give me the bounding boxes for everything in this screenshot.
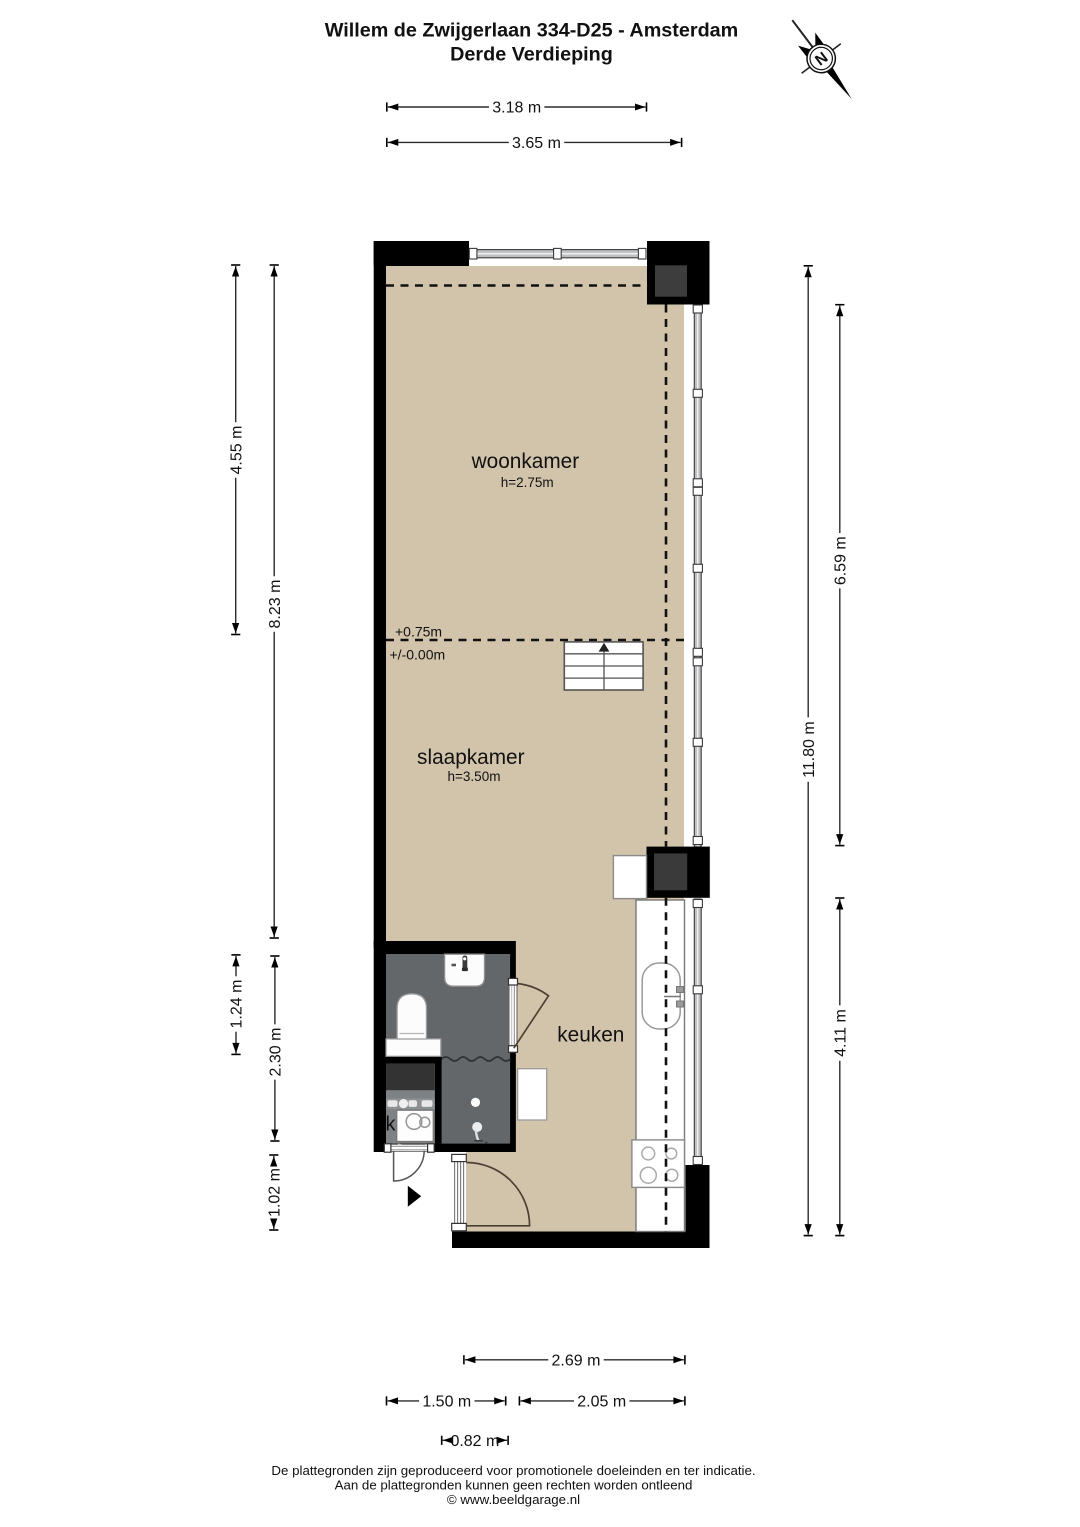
svg-text:woonkamer: woonkamer (471, 450, 580, 473)
svg-text:Derde Verdieping: Derde Verdieping (450, 44, 613, 66)
svg-text:Willem de Zwijgerlaan 334-D25: Willem de Zwijgerlaan 334-D25 - Amsterda… (325, 20, 739, 42)
svg-text:2.05 m: 2.05 m (577, 1394, 626, 1411)
svg-text:1.50 m: 1.50 m (422, 1394, 471, 1411)
svg-text:3.65 m: 3.65 m (512, 135, 561, 152)
svg-text:1.24 m: 1.24 m (229, 980, 246, 1029)
svg-text:slaapkamer: slaapkamer (417, 746, 525, 769)
svg-text:2.30 m: 2.30 m (268, 1028, 285, 1077)
svg-text:© www.beeldgarage.nl: © www.beeldgarage.nl (447, 1492, 580, 1507)
svg-text:1.02 m: 1.02 m (266, 1168, 283, 1217)
svg-text:0.82 m: 0.82 m (450, 1433, 499, 1450)
svg-text:De plattegronden zijn geproduc: De plattegronden zijn geproduceerd voor … (271, 1463, 755, 1478)
svg-text:6.59 m: 6.59 m (833, 536, 850, 585)
svg-text:+/-0.00m: +/-0.00m (390, 647, 446, 663)
svg-text:4.55 m: 4.55 m (228, 426, 245, 475)
svg-text:keuken: keuken (557, 1024, 624, 1047)
svg-text:h=3.50m: h=3.50m (448, 769, 501, 784)
svg-text:4.11 m: 4.11 m (832, 1009, 849, 1057)
svg-text:+0.75m: +0.75m (395, 624, 442, 640)
svg-text:2.69 m: 2.69 m (552, 1353, 601, 1370)
svg-text:8.23 m: 8.23 m (267, 580, 284, 629)
svg-text:h=2.75m: h=2.75m (501, 475, 554, 490)
svg-text:k: k (386, 1114, 397, 1136)
svg-text:Aan de plattegronden kunnen ge: Aan de plattegronden kunnen geen rechten… (335, 1478, 693, 1493)
svg-text:11.80 m: 11.80 m (801, 721, 818, 778)
svg-text:3.18 m: 3.18 m (492, 100, 541, 117)
